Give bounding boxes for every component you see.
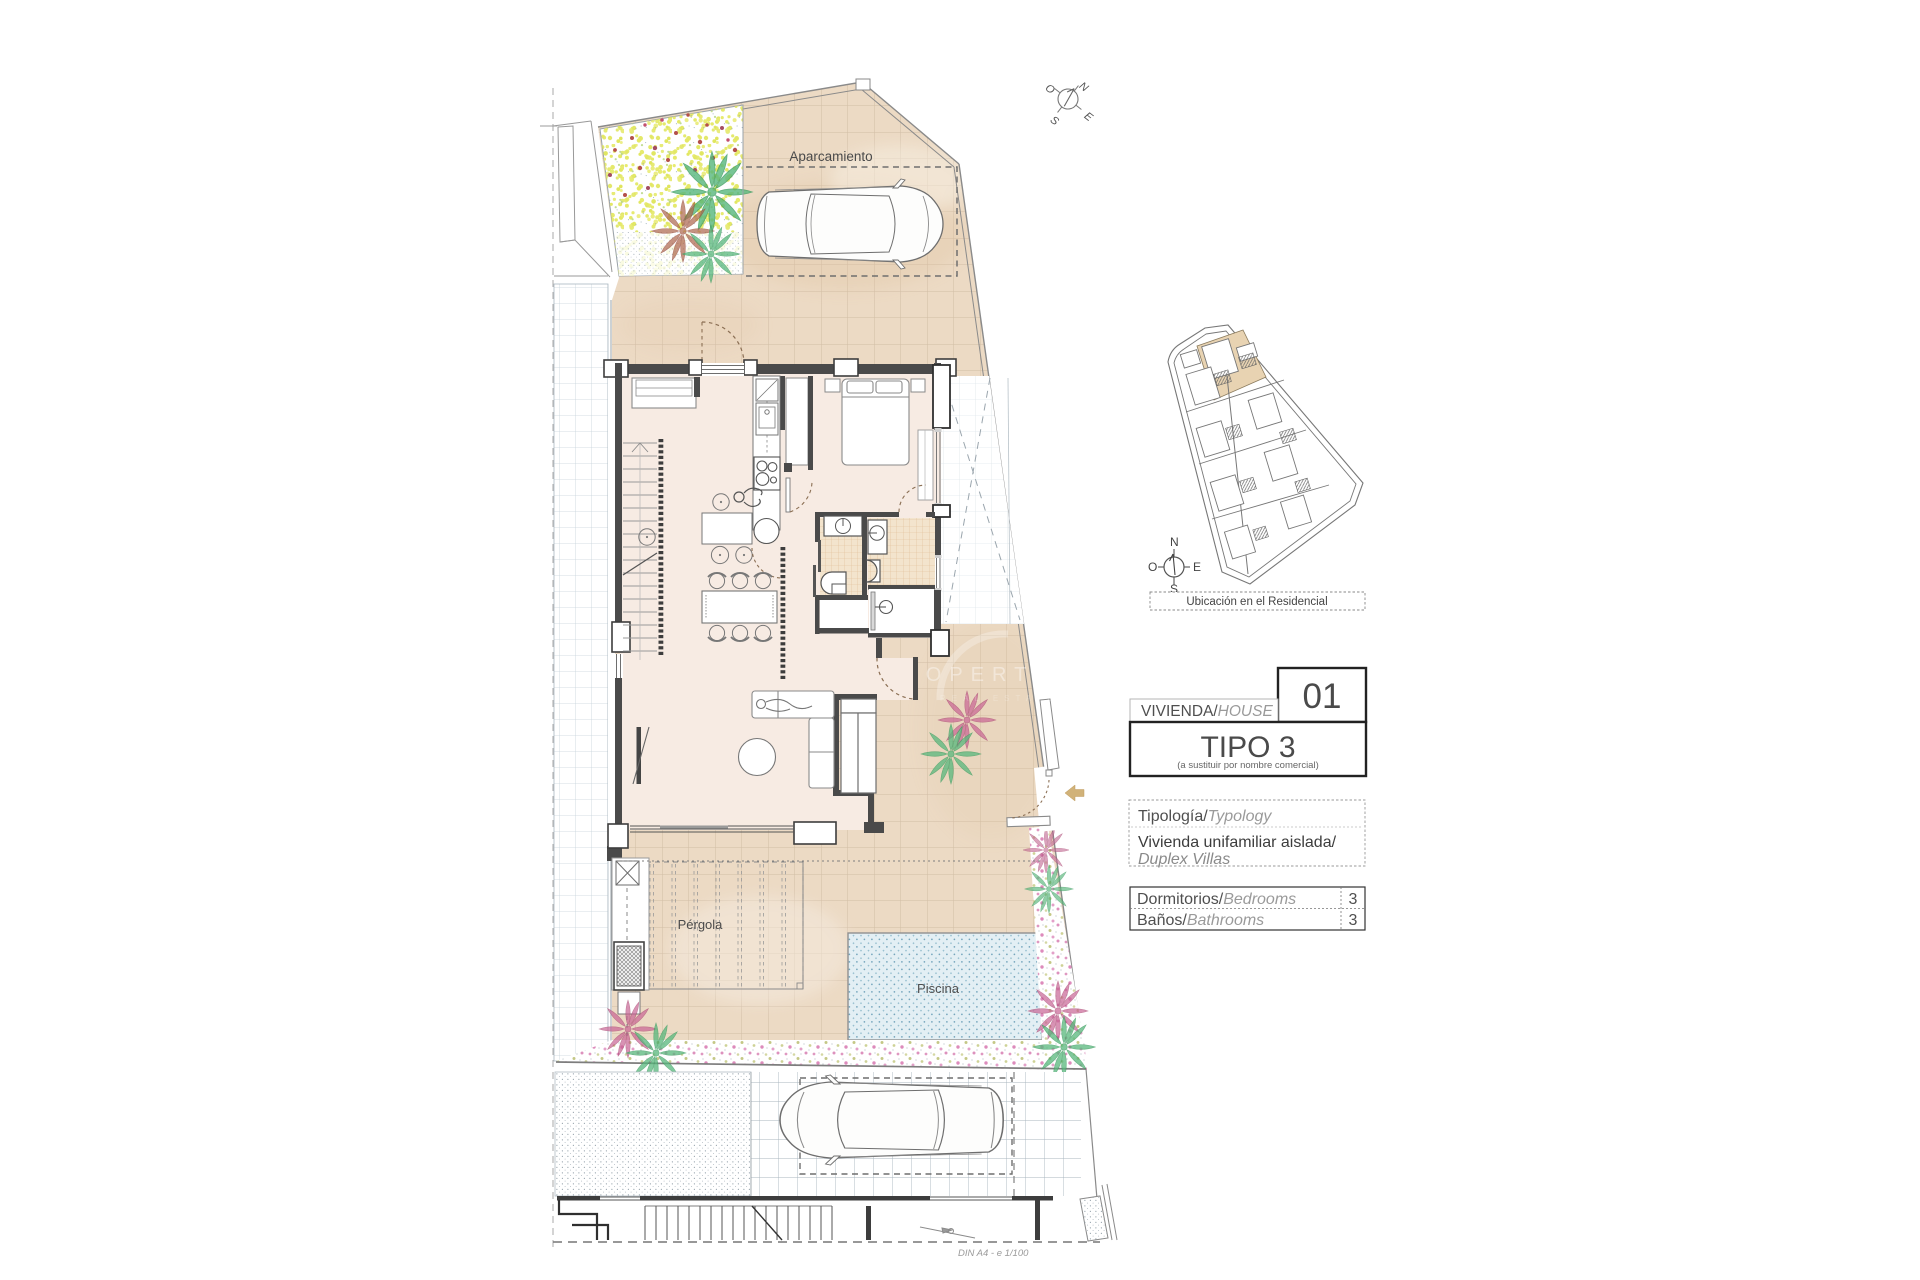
svg-text:Tipología/Typology: Tipología/Typology	[1138, 808, 1272, 825]
svg-text:Dormitorios/Bedrooms: Dormitorios/Bedrooms	[1137, 891, 1296, 908]
svg-text:Aparcamiento: Aparcamiento	[789, 149, 872, 164]
svg-text:N: N	[1170, 535, 1179, 549]
svg-text:REAL ESTATE: REAL ESTATE	[940, 694, 1059, 703]
svg-text:3: 3	[1349, 891, 1358, 908]
svg-text:Pérgola: Pérgola	[678, 917, 724, 932]
svg-text:VIVIENDA/HOUSE: VIVIENDA/HOUSE	[1141, 703, 1273, 720]
svg-text:DIN A4 - e 1/100: DIN A4 - e 1/100	[958, 1248, 1029, 1259]
svg-text:Ubicación en el Residencial: Ubicación en el Residencial	[1186, 596, 1327, 608]
svg-text:3: 3	[1349, 912, 1358, 929]
svg-text:Duplex Villas: Duplex Villas	[1138, 851, 1230, 868]
svg-text:O: O	[1148, 560, 1157, 574]
svg-text:(a sustituir por nombre comerc: (a sustituir por nombre comercial)	[1177, 760, 1319, 771]
svg-text:Vivienda unifamiliar aislada/: Vivienda unifamiliar aislada/	[1138, 834, 1337, 851]
svg-text:01: 01	[1303, 677, 1342, 716]
svg-text:Piscina: Piscina	[917, 981, 960, 996]
svg-text:Baños/Bathrooms: Baños/Bathrooms	[1137, 912, 1264, 929]
svg-text:E: E	[1193, 560, 1201, 574]
